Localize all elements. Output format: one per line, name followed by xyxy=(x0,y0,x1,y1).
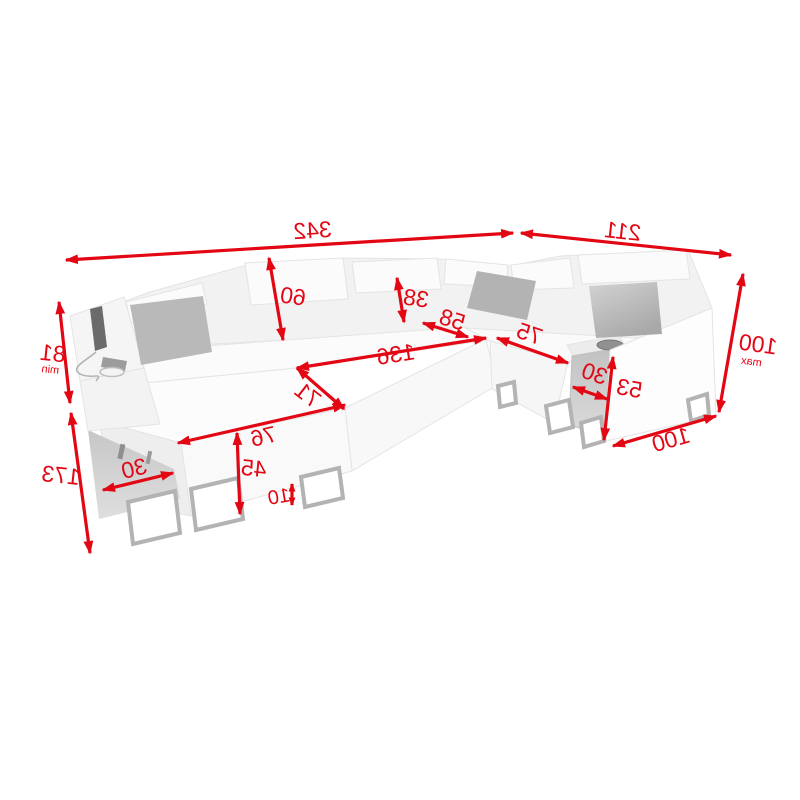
sofa-leg xyxy=(128,491,180,544)
pillow-right xyxy=(589,282,662,338)
dimension-line xyxy=(66,233,513,260)
sofa-leg xyxy=(498,382,516,407)
sofa-leg xyxy=(546,400,573,433)
sofa-headrest xyxy=(578,250,690,284)
dimension-label: 136 xyxy=(375,338,417,370)
dimension-chaise-depth-173: 173 xyxy=(40,413,90,553)
dimension-side-width-211: 211 xyxy=(521,216,731,255)
cupholder-left xyxy=(100,368,124,377)
sofa-leg xyxy=(191,478,243,530)
dimension-label: 45 xyxy=(240,454,268,483)
sofa-dimension-diagram: 342 211 100 max 60 38 58 136 xyxy=(0,0,800,800)
dimension-label: 38 xyxy=(402,283,431,312)
dimension-label: 173 xyxy=(40,460,81,490)
dimension-height-100max: 100 max xyxy=(719,274,779,412)
dimension-label: 342 xyxy=(293,216,333,244)
dimension-seat-height-81min: 81 min xyxy=(39,302,70,403)
sofa-leg xyxy=(581,417,604,447)
dimension-label: 211 xyxy=(603,216,642,246)
dimension-sublabel: min xyxy=(41,363,60,377)
dimension-label: 53 xyxy=(615,373,645,403)
dimension-total-width-342: 342 xyxy=(66,216,513,260)
dimension-label: 10 xyxy=(266,484,292,510)
dimension-leg-height-10: 10 xyxy=(266,484,292,510)
product-dimension-image: 342 211 100 max 60 38 58 136 xyxy=(0,0,800,800)
dimension-sublabel: max xyxy=(740,355,763,370)
sofa-leg xyxy=(301,468,343,507)
sofa-front-face-middle xyxy=(345,339,497,471)
sofa-leg xyxy=(688,394,709,421)
dimension-label: 60 xyxy=(279,281,308,310)
